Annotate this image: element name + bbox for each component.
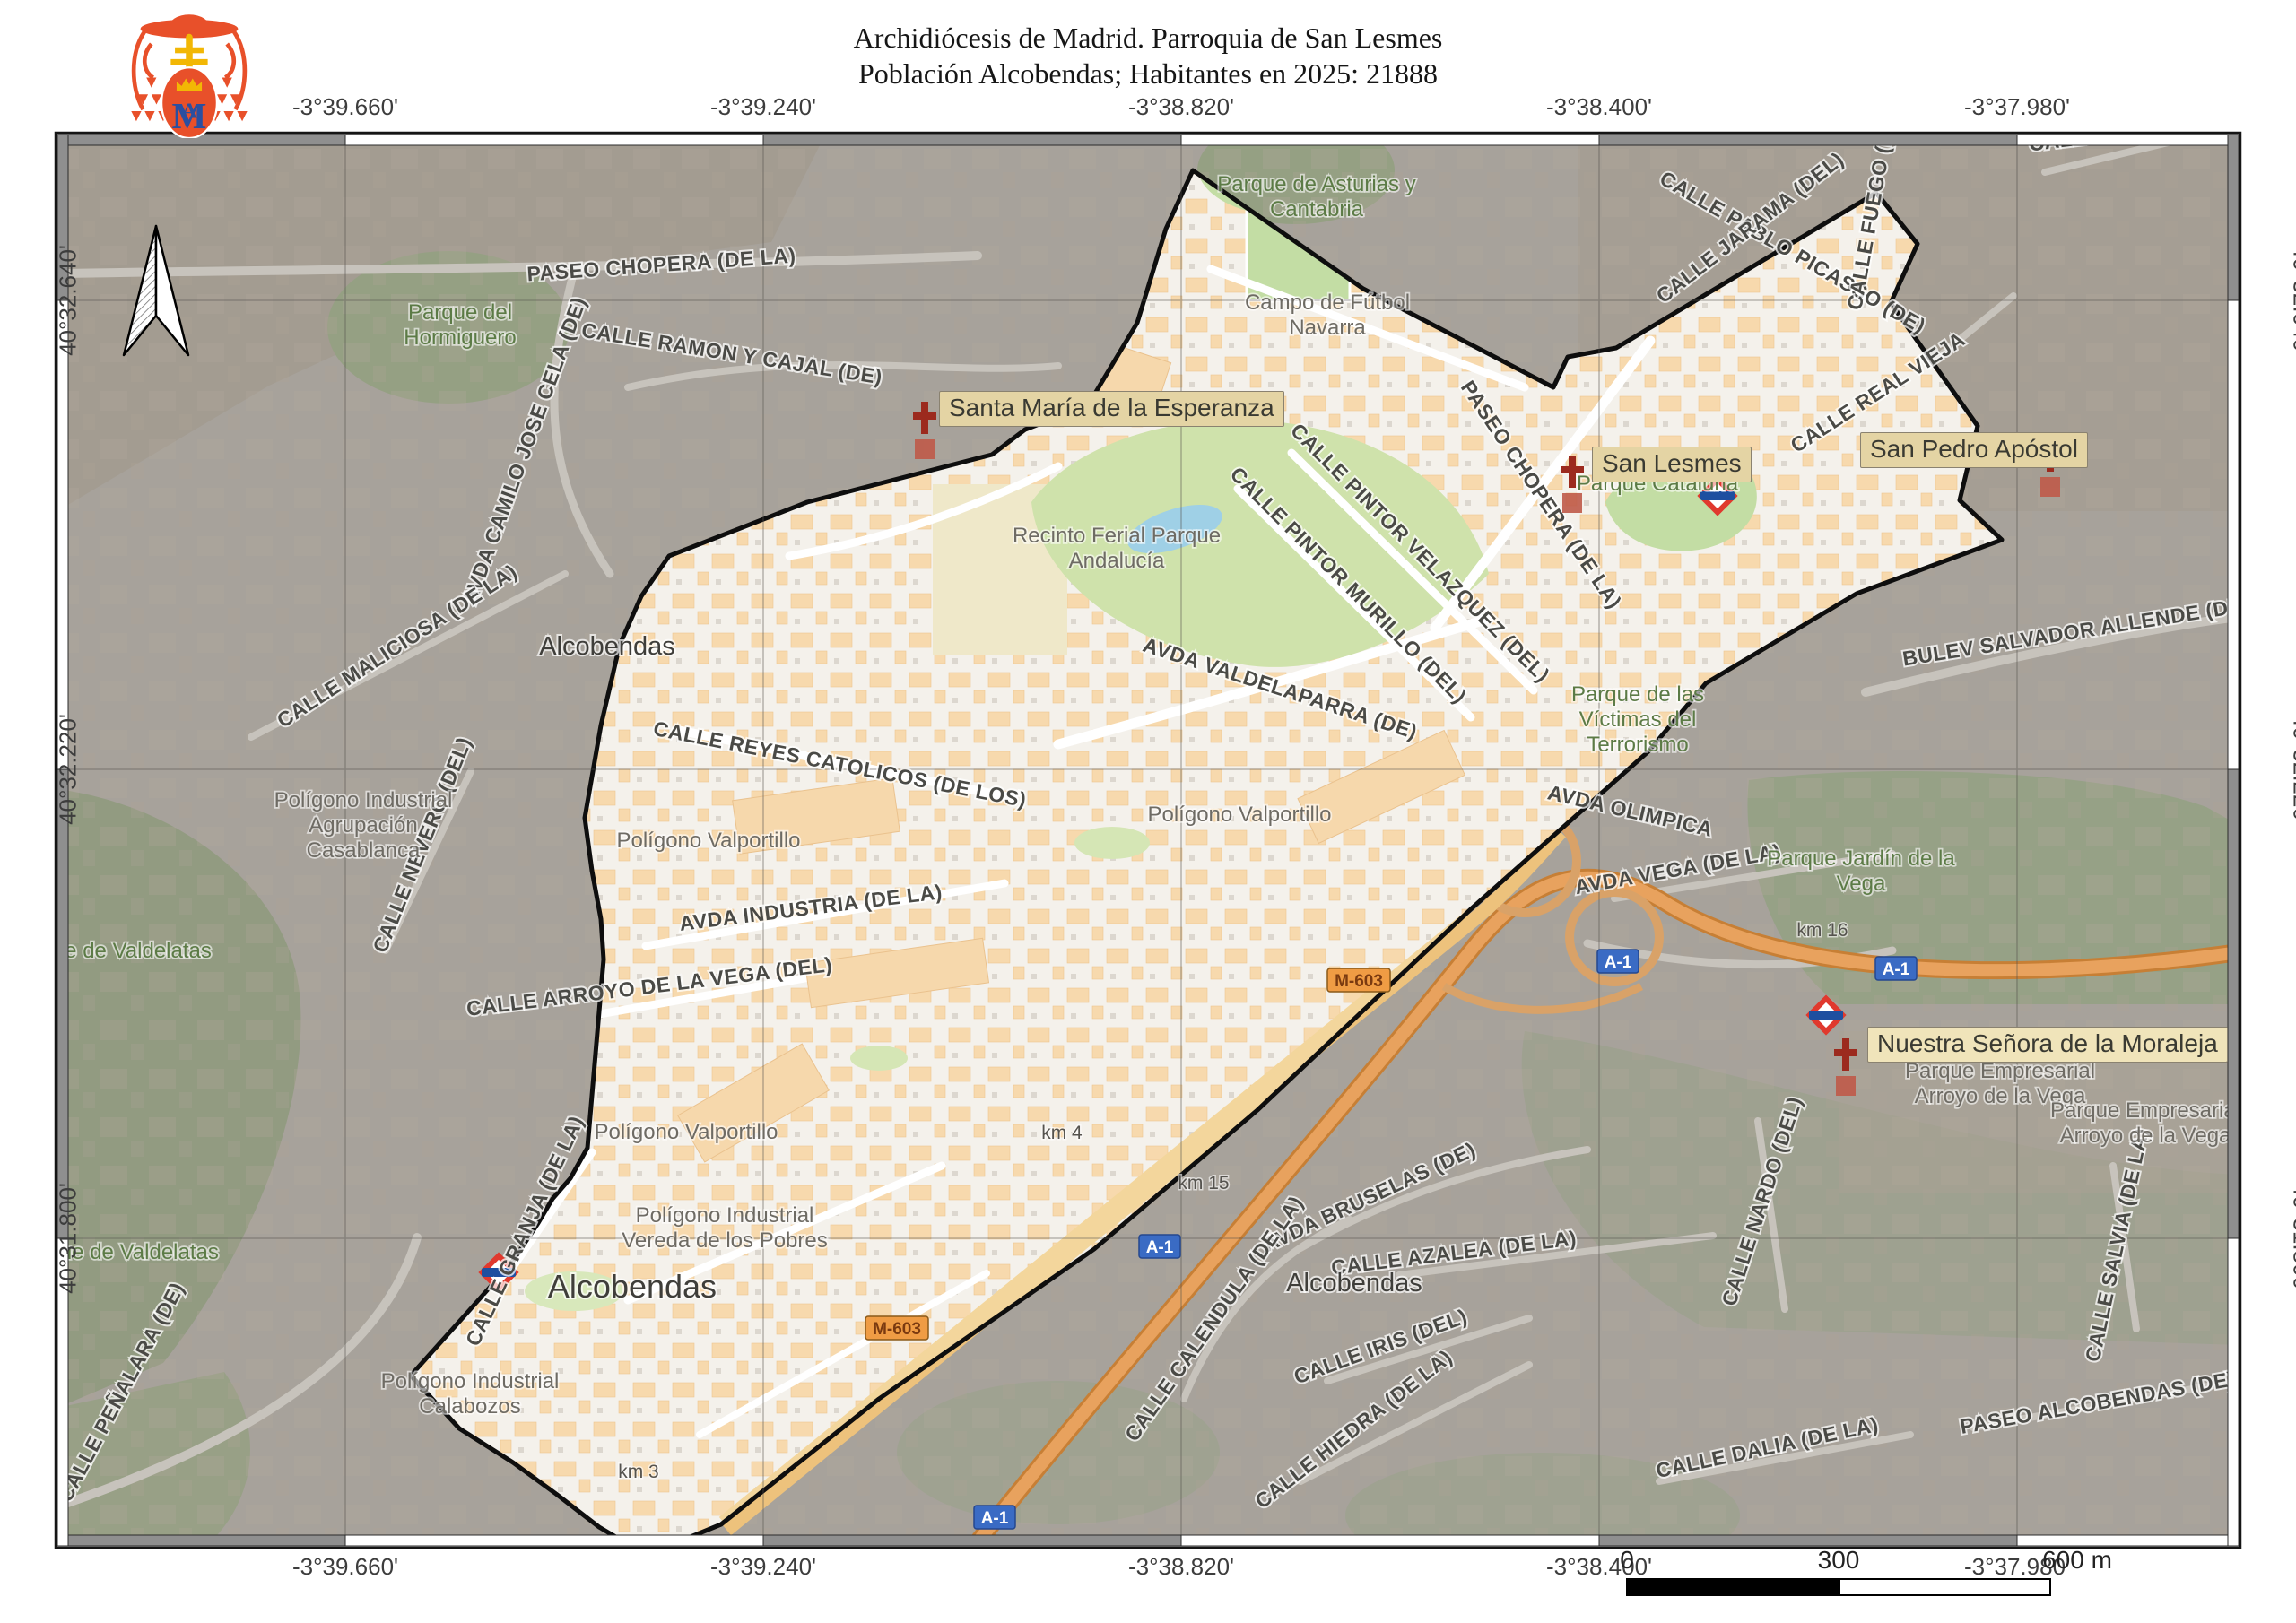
map-label-park: Parque de las <box>1571 682 1704 707</box>
road-badge: A-1 <box>974 1506 1015 1529</box>
church-label: Nuestra Señora de la Moraleja <box>1867 1027 2228 1063</box>
map-label-place: Polígono Industrial <box>274 788 453 812</box>
map-label-place: Arroyo de la Vega <box>2060 1124 2231 1148</box>
map-label-place: Calabozos <box>419 1394 520 1419</box>
map-label-place: Casablanca <box>307 838 421 863</box>
map-label-km: km 15 <box>1178 1173 1229 1193</box>
coord-label-bottom: -3°38.820' <box>1128 1553 1234 1581</box>
coord-label-bottom: -3°39.660' <box>292 1553 398 1581</box>
map-label-town: Alcobendas <box>548 1268 717 1305</box>
coord-label-left: 40°32.220' <box>54 714 82 825</box>
map-label-town: Alcobendas <box>1286 1269 1422 1298</box>
map-label-town: Alcobendas <box>539 632 675 661</box>
coord-label-bottom: -3°38.400' <box>1546 1553 1652 1581</box>
map-label-km: km 3 <box>618 1462 659 1482</box>
map-label-park: Cantabria <box>1270 197 1364 221</box>
coord-label-right: 40°31.800' <box>2287 1183 2296 1294</box>
map-label-km: km 4 <box>1041 1123 1083 1143</box>
map-label-place: Campo de Fútbol <box>1245 291 1410 315</box>
road-badge: A-1 <box>1139 1235 1180 1258</box>
scale-label-600: 600 m <box>2042 1546 2112 1575</box>
map-label-place: Parque Empresarial <box>1905 1059 2095 1083</box>
diocese-coat-of-arms: M A <box>113 4 265 138</box>
svg-text:A-1: A-1 <box>1883 960 1910 979</box>
svg-text:M-603: M-603 <box>873 1320 921 1339</box>
map-label-place: Polígono Valportillo <box>594 1120 778 1144</box>
scale-label-0: 0 <box>1620 1546 1634 1575</box>
map-label-park: Hormiguero <box>404 325 516 350</box>
map-label-place: Polígono Valportillo <box>616 829 800 853</box>
coord-label-bottom: -3°39.240' <box>710 1553 816 1581</box>
page-title: Archidiócesis de Madrid. Parroquia de Sa… <box>854 20 1443 56</box>
map-label-place: Polígono Industrial <box>381 1369 560 1393</box>
map-title-block: Archidiócesis de Madrid. Parroquia de Sa… <box>854 20 1443 91</box>
coord-label-left: 40°31.800' <box>54 1183 82 1294</box>
coord-label-right: 40°32.640' <box>2287 245 2296 356</box>
map-label-park: Parque de Asturias y <box>1217 172 1415 196</box>
dimmed-base-layer: M-603M-603A-1A-1A-1A-1 PASEO CHOPERA (DE… <box>7 95 2257 1578</box>
svg-text:A: A <box>181 100 197 124</box>
map-label-place: Polígono Valportillo <box>1147 803 1331 827</box>
map-label-park: Parque Jardín de la <box>1767 846 1955 871</box>
church-label: San Pedro Apóstol <box>1860 432 2088 468</box>
coord-label-top: -3°39.240' <box>710 93 816 121</box>
map-canvas: M-603M-603A-1A-1A-1A-1 PASEO CHOPERA (DE… <box>0 0 2296 1623</box>
svg-text:M-603: M-603 <box>1335 972 1383 991</box>
map-label-park: Vega <box>1837 872 1886 896</box>
coord-label-top: -3°37.980' <box>1964 93 2070 121</box>
coord-label-top: -3°38.820' <box>1128 93 1234 121</box>
coord-label-right: 40°32.220' <box>2287 714 2296 825</box>
svg-text:A-1: A-1 <box>981 1509 1009 1528</box>
map-label-place: Parque Empresarial <box>2050 1098 2240 1123</box>
map-label-park: Parque del <box>408 300 512 325</box>
svg-text:A-1: A-1 <box>1605 953 1632 972</box>
coord-label-top: -3°38.400' <box>1546 93 1652 121</box>
church-label: San Lesmes <box>1592 447 1752 482</box>
svg-text:A-1: A-1 <box>1146 1238 1174 1257</box>
map-label-place: Andalucía <box>1069 549 1165 573</box>
map-label-park: Parque de Valdelatas <box>14 1240 219 1264</box>
map-label-place: Vereda de los Pobres <box>622 1228 828 1253</box>
road-badge: M-603 <box>1327 968 1390 992</box>
map-label-park: Terrorismo <box>1587 733 1688 757</box>
map-label-place: Navarra <box>1289 316 1366 340</box>
map-label-park: Parque de Valdelatas <box>7 939 212 963</box>
map-label-place: Recinto Ferial Parque <box>1013 524 1221 548</box>
page-subtitle: Población Alcobendas; Habitantes en 2025… <box>854 56 1443 91</box>
road-badge: M-603 <box>865 1316 928 1340</box>
map-label-km: km 16 <box>1796 920 1848 941</box>
map-label-place: Polígono Industrial <box>636 1203 814 1228</box>
road-badge: A-1 <box>1875 957 1917 980</box>
coord-label-top: -3°39.660' <box>292 93 398 121</box>
scale-bar-graphic <box>1626 1578 2051 1596</box>
map-label-place: Agrupación <box>309 813 417 838</box>
scale-label-300: 300 <box>1818 1546 1860 1575</box>
map-label-park: Víctimas del <box>1579 707 1697 732</box>
road-badge: A-1 <box>1597 950 1639 973</box>
church-label: Santa María de la Esperanza <box>939 391 1284 427</box>
map-page: M-603M-603A-1A-1A-1A-1 PASEO CHOPERA (DE… <box>0 0 2296 1623</box>
coord-label-left: 40°32.640' <box>54 245 82 356</box>
